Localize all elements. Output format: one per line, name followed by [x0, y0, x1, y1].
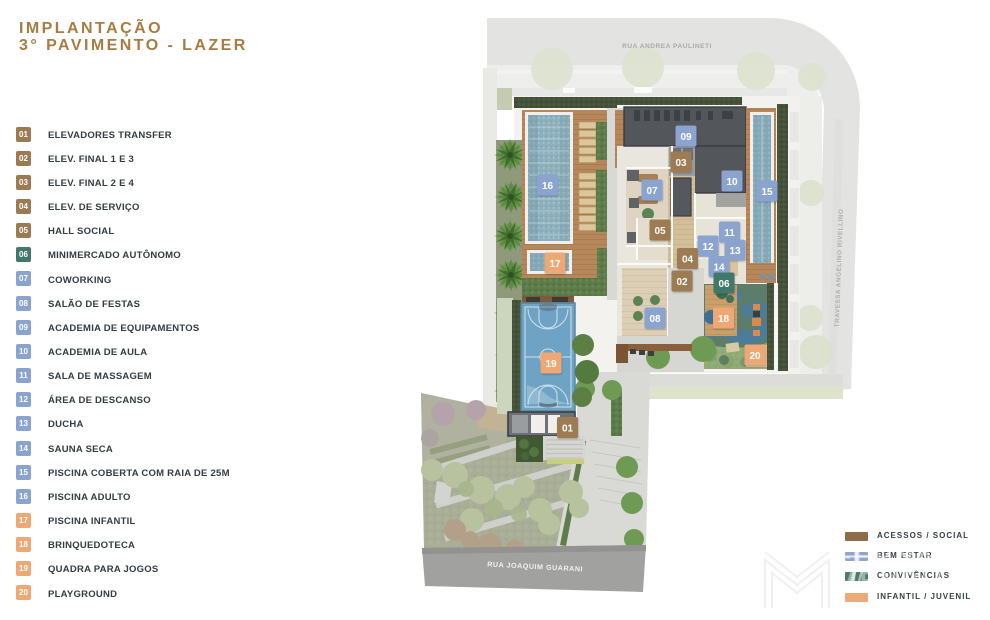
svg-text:10: 10 [726, 177, 738, 188]
svg-text:18: 18 [718, 314, 730, 325]
svg-text:11: 11 [724, 228, 735, 239]
svg-text:RUA ANDREA PAULINETI: RUA ANDREA PAULINETI [622, 43, 712, 50]
svg-text:16: 16 [542, 181, 554, 192]
svg-text:07: 07 [646, 186, 658, 197]
svg-text:04: 04 [682, 255, 694, 266]
svg-text:19: 19 [545, 359, 557, 370]
svg-text:05: 05 [654, 226, 666, 237]
svg-text:14: 14 [713, 263, 725, 274]
svg-text:03: 03 [675, 158, 687, 169]
svg-text:02: 02 [676, 277, 688, 288]
svg-text:20: 20 [749, 351, 761, 362]
svg-text:01: 01 [562, 424, 574, 435]
svg-text:08: 08 [649, 314, 661, 325]
svg-text:06: 06 [718, 279, 730, 290]
svg-text:15: 15 [761, 187, 773, 198]
svg-text:12: 12 [702, 242, 714, 253]
svg-text:17: 17 [549, 259, 561, 270]
svg-text:09: 09 [680, 132, 692, 143]
svg-text:13: 13 [729, 246, 741, 257]
